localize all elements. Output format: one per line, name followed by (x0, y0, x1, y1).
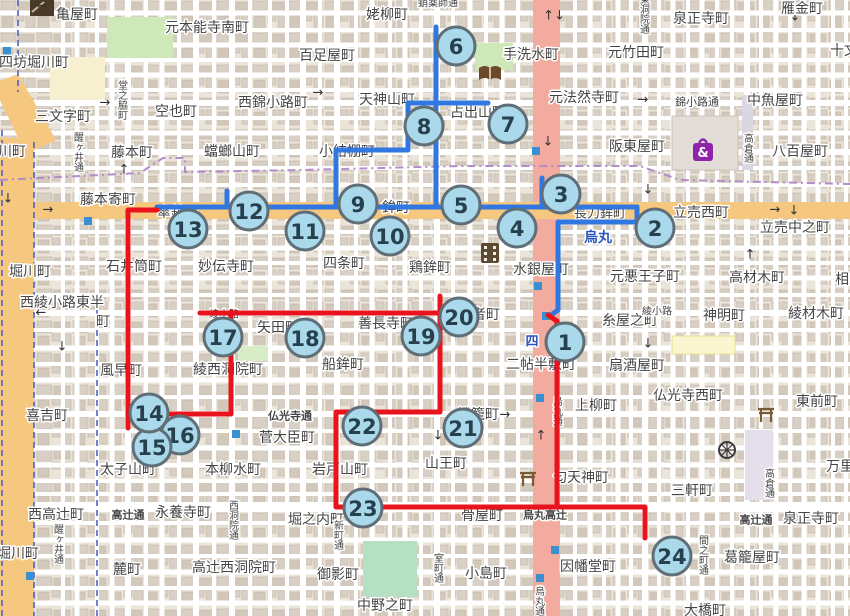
map-label: 西綾小路東半 (20, 295, 104, 311)
map-label: 十文字 (830, 43, 850, 59)
map-marker-24[interactable]: 24 (653, 537, 691, 575)
map-label: 西高辻町 (28, 506, 84, 523)
subway-entrance-icon (532, 147, 540, 155)
map-label: 堀川町 (9, 264, 51, 280)
map-marker-2[interactable]: 2 (636, 209, 674, 247)
map-marker-9[interactable]: 9 (339, 185, 377, 223)
marker-number: 2 (648, 217, 663, 241)
map-label: 手洗水町 (503, 47, 559, 63)
map-marker-1[interactable]: 1 (546, 323, 584, 361)
map-label: 山王町 (425, 456, 467, 472)
map-marker-6[interactable]: 6 (437, 27, 475, 65)
marker-number: 12 (234, 200, 263, 224)
oneway-arrow: ↓ (789, 204, 800, 219)
map-label: 葛籠屋町 (724, 550, 780, 566)
map-label: 烏丸 (584, 229, 613, 246)
book-icon (479, 66, 501, 80)
map-label: 醒ヶ井通 (72, 132, 84, 172)
map-label: 扇酒屋町 (609, 358, 665, 374)
map-label: 高倉通 (763, 467, 775, 498)
map-label: 間之町通 (697, 535, 709, 575)
oneway-arrow: → (770, 203, 781, 218)
map-label: 因幡堂町 (560, 559, 616, 575)
map-label: 菅大臣町 (259, 430, 315, 446)
oneway-arrow: ↑ (745, 248, 756, 263)
map-label: 水銀屋町 (513, 262, 569, 278)
map-marker-7[interactable]: 7 (489, 105, 527, 143)
subway-entrance-icon (232, 430, 240, 438)
marker-number: 20 (444, 306, 473, 330)
map-marker-18[interactable]: 18 (286, 319, 324, 357)
map-label: 堀川町 (0, 546, 39, 562)
small-green (238, 346, 268, 361)
map-label: 立売中之町 (760, 220, 830, 236)
crest-icon (719, 442, 735, 458)
map-label: 綾材木町 (788, 306, 844, 322)
map-label: 喜吉町 (26, 408, 68, 424)
map-label: 元本能寺南町 (165, 20, 249, 36)
oneway-arrow: → (638, 93, 649, 108)
map-label: 麓町 (113, 562, 141, 578)
subway-entrance-icon (84, 217, 92, 225)
map-label: 川町 (0, 144, 26, 160)
map-marker-3[interactable]: 3 (542, 175, 580, 213)
marker-number: 18 (290, 327, 319, 351)
map-marker-22[interactable]: 22 (343, 407, 381, 445)
map-marker-10[interactable]: 10 (371, 217, 409, 255)
map-label: 仏光寺西町 (653, 388, 723, 404)
map-label: 四条町 (323, 255, 365, 272)
map-label: 高辻通 (740, 513, 773, 527)
map-label: 永養寺町 (155, 504, 211, 521)
map-marker-8[interactable]: 8 (405, 107, 443, 145)
marker-number: 3 (554, 183, 569, 207)
map-marker-11[interactable]: 11 (286, 212, 324, 250)
map-label: 中魚屋町 (747, 93, 803, 109)
map-label: 船鉾町 (322, 357, 364, 373)
map-label: 東洞院通 (638, 0, 650, 34)
map-label: 室町通 (432, 552, 444, 583)
map-label: 亀屋町 (56, 7, 98, 23)
map-label: 泉正寺町 (673, 10, 729, 27)
oneway-arrow: ↓ (57, 340, 68, 355)
subway-entrance-icon (536, 574, 544, 582)
subway-entrance-icon (536, 394, 544, 402)
subway-entrance-icon (3, 47, 11, 55)
map-label: 元法然寺町 (549, 89, 619, 106)
map-label: 西錦小路町 (238, 94, 308, 111)
oneway-arrow: ↑ (536, 429, 547, 444)
map-label: 錦小路通 (675, 95, 719, 109)
map-label: 泉正寺町 (783, 510, 839, 527)
marker-number: 21 (448, 417, 477, 441)
map-label: 藤本町 (111, 145, 153, 161)
map-label: 骨屋町 (461, 508, 503, 524)
map-marker-23[interactable]: 23 (344, 489, 382, 527)
subway-entrance-icon (534, 282, 542, 290)
oneway-arrow: ↑↓ (543, 9, 565, 24)
yellow-block-e (672, 336, 735, 354)
map-marker-13[interactable]: 13 (169, 210, 207, 248)
subway-entrance-icon (26, 572, 34, 580)
marker-number: 5 (454, 194, 469, 218)
oneway-arrow: ↓ (433, 429, 444, 444)
park-nw (107, 17, 173, 58)
map-label: 三軒町 (671, 483, 713, 499)
map-label: 上柳町 (575, 397, 617, 414)
map-label: 石井筒町 (106, 258, 162, 275)
map-label: 藤本寄町 (80, 191, 136, 208)
oneway-arrow: ↑ (119, 163, 130, 178)
oneway-arrow: → (100, 96, 111, 111)
oneway-arrow: ↓ (643, 337, 654, 352)
map-label: 新町通 (332, 519, 344, 550)
map-marker-4[interactable]: 4 (498, 209, 536, 247)
marker-number: 4 (510, 217, 525, 241)
map-label: 高倉通 (742, 132, 754, 163)
map-label: 四坊堀川町 (0, 55, 69, 71)
map-marker-21[interactable]: 21 (444, 409, 482, 447)
subway-entrance-icon (551, 546, 559, 554)
map-label: 百足屋町 (299, 48, 355, 64)
marker-number: 13 (173, 218, 202, 242)
oneway-arrow: → (43, 203, 54, 218)
map-marker-5[interactable]: 5 (442, 186, 480, 224)
oneway-arrow: ↓ (543, 135, 554, 150)
marker-number: 17 (208, 326, 237, 350)
map-label: 仏光寺通 (268, 409, 312, 423)
oneway-arrow: → (500, 408, 511, 423)
map-label: 綾小路 (642, 305, 672, 318)
map-label: 元竹田町 (608, 45, 664, 61)
marker-number: 14 (134, 402, 163, 426)
map-marker-14[interactable]: 14 (130, 394, 168, 432)
map-label: 元悪王子町 (610, 269, 680, 285)
map-label: 阪東屋町 (609, 139, 665, 155)
oneway-arrow: ↓ (643, 183, 654, 198)
map-label: 烏丸高辻 (523, 508, 567, 522)
map-label: 相之 (835, 272, 850, 288)
map-label: 雁金町 (781, 1, 823, 17)
marker-number: 22 (347, 415, 376, 439)
map-label: 高辻通 (112, 508, 145, 522)
oneway-arrow: ↓ (3, 192, 14, 207)
marker-number: 24 (657, 545, 686, 569)
map-label: 四 (525, 335, 538, 350)
map-label: 匂天神町 (553, 470, 609, 486)
map-marker-20[interactable]: 20 (440, 298, 478, 336)
map-canvas[interactable]: &←→→→→→↓↑↓↑↓↓↓↑↓←↓↑↓↓→亀屋町元本能寺南町百足屋町姥柳町蛸薬… (0, 0, 850, 616)
map-label: 中野之町 (357, 598, 413, 614)
marker-number: 1 (558, 331, 573, 355)
map-label: 鶏鉾町 (409, 260, 451, 276)
marker-number: 15 (137, 436, 166, 460)
marker-number: 7 (501, 113, 516, 137)
marker-number: 10 (375, 225, 404, 249)
map-svg: &←→→→→→↓↑↓↑↓↓↓↑↓←↓↑↓↓→亀屋町元本能寺南町百足屋町姥柳町蛸薬… (0, 0, 850, 616)
map-label: 綾西洞院町 (193, 362, 263, 378)
film-icon (481, 243, 499, 263)
map-label: 小島町 (465, 566, 507, 582)
map-marker-15[interactable]: 15 (133, 428, 171, 466)
map-label: 大橋町 (684, 603, 726, 616)
map-label: 岩戸山町 (312, 462, 368, 478)
map-label: 神明町 (703, 308, 745, 324)
map-label: 御影町 (317, 567, 359, 583)
map-label: 西洞院通 (227, 500, 239, 540)
oneway-arrow: → (313, 86, 324, 101)
map-label: 高辻西洞院町 (192, 559, 276, 576)
map-label: 立売西町 (673, 205, 729, 221)
marker-number: 11 (290, 220, 319, 244)
shrine-green-south (363, 541, 417, 597)
map-label: 本柳水町 (205, 461, 261, 478)
marker-number: 8 (417, 115, 432, 139)
marker-number: 19 (406, 325, 435, 349)
map-label: 万里 (826, 459, 850, 475)
map-label: 三文字町 (35, 109, 91, 125)
map-label: 烏丸通 (533, 585, 545, 616)
svg-text:&: & (697, 146, 708, 161)
marker-number: 23 (348, 497, 377, 521)
marker-number: 9 (351, 193, 366, 217)
map-label: 堂之脇町 (116, 80, 128, 120)
map-label: 風早町 (100, 363, 142, 379)
map-label: 高材木町 (729, 269, 785, 286)
map-label: 空也町 (155, 104, 197, 120)
oneway-arrow: ← (37, 0, 48, 14)
map-label: 東前町 (796, 393, 838, 410)
map-label: 姥柳町 (366, 6, 408, 23)
map-label: 八百屋町 (772, 144, 828, 160)
map-marker-17[interactable]: 17 (204, 318, 242, 356)
map-label: 蟷螂山町 (204, 144, 260, 160)
map-marker-19[interactable]: 19 (402, 317, 440, 355)
map-label: 醒ヶ井通 (52, 524, 64, 564)
map-label: 町 (96, 314, 110, 330)
map-marker-12[interactable]: 12 (230, 192, 268, 230)
map-label: 蛸薬師通 (418, 0, 458, 10)
map-label: 妙伝寺町 (198, 259, 254, 275)
marker-number: 6 (449, 35, 464, 59)
